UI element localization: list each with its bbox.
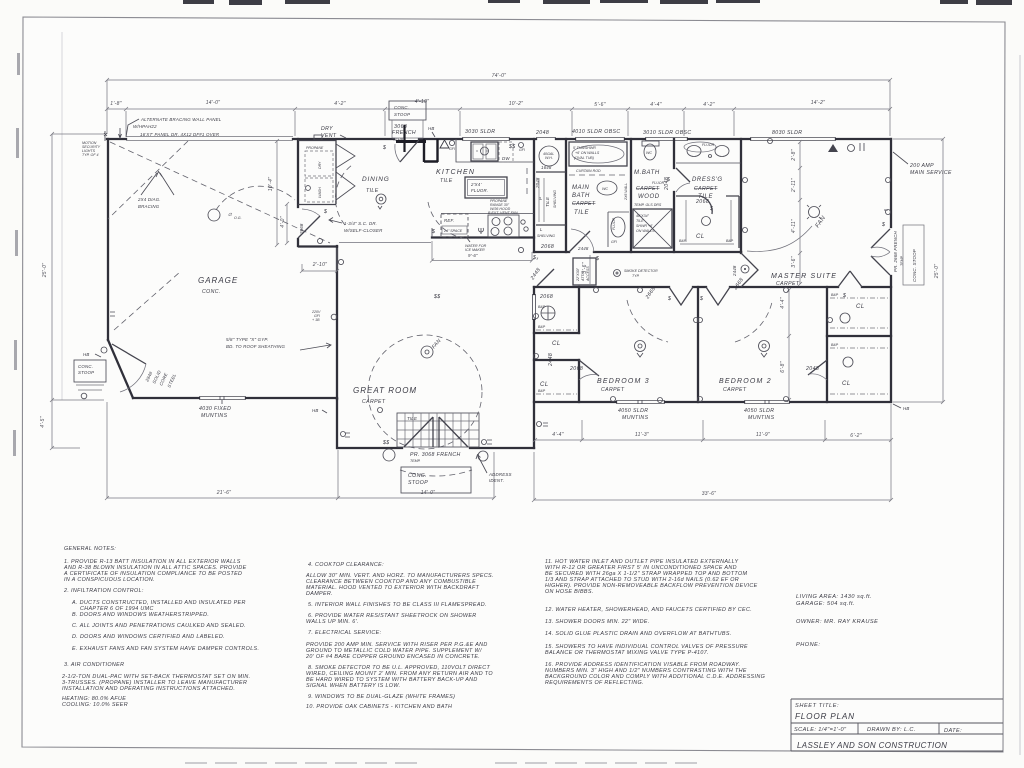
svg-text:GARAGE: GARAGE (198, 276, 238, 285)
svg-text:DRAWN BY: L.C.: DRAWN BY: L.C. (867, 727, 916, 733)
svg-text:VENT: VENT (321, 133, 337, 139)
svg-text:DATE:: DATE: (944, 728, 962, 734)
svg-text:2048: 2048 (535, 130, 549, 136)
svg-text:CARPET: CARPET (362, 399, 386, 405)
svg-text:$: $ (431, 229, 435, 235)
svg-text:5'-6": 5'-6" (594, 102, 605, 108)
svg-text:FLOOR PLAN: FLOOR PLAN (795, 712, 855, 721)
svg-text:TILE: TILE (574, 210, 589, 216)
svg-text:14'-2": 14'-2" (811, 100, 826, 106)
svg-text:DAMPER.: DAMPER. (306, 591, 333, 597)
svg-text:3'-6": 3'-6" (791, 256, 797, 267)
svg-text:13. SHOWER DOORS MIN. 22" WID: 13. SHOWER DOORS MIN. 22" WIDE. (545, 619, 650, 625)
svg-text:STOOP: STOOP (408, 480, 428, 486)
svg-text:∅: ∅ (228, 212, 232, 217)
svg-text:CONC.: CONC. (394, 105, 409, 110)
svg-text:REF.: REF. (444, 218, 454, 223)
svg-text:ADDRESS: ADDRESS (488, 472, 512, 477)
svg-text:HB: HB (312, 408, 319, 413)
svg-text:BEDROOM 3: BEDROOM 3 (597, 378, 650, 385)
svg-text:WASH: WASH (318, 187, 322, 198)
svg-text:COOLING: 10.0% SEER: COOLING: 10.0% SEER (62, 702, 128, 708)
svg-text:1648: 1648 (541, 165, 552, 170)
svg-text:D. DOORS AND WINDOWS CERTIFIED: D. DOORS AND WINDOWS CERTIFIED AND LABEL… (72, 634, 225, 640)
svg-text:B EXT. VENT FAN: B EXT. VENT FAN (488, 211, 518, 215)
svg-text:CL: CL (540, 382, 549, 388)
svg-text:5/8" TYPE "X" GYP.: 5/8" TYPE "X" GYP. (226, 337, 268, 342)
svg-text:9. WINDOWS TO BE DUAL-GLAZE (: 9. WINDOWS TO BE DUAL-GLAZE (WHITE FRAME… (308, 694, 455, 700)
svg-text:B&P: B&P (538, 389, 546, 393)
svg-text:GFI: GFI (519, 148, 525, 152)
svg-text:10'-4": 10'-4" (268, 177, 274, 192)
svg-text:2'X4': 2'X4' (470, 182, 482, 187)
svg-text:B. DOORS AND WINDOWS WEATHERST: B. DOORS AND WINDOWS WEATHERSTRIPPED. (72, 612, 209, 618)
svg-text:SCALE: 1/4"=1'-0": SCALE: 1/4"=1'-0" (794, 727, 847, 733)
svg-text:B&P: B&P (538, 325, 546, 329)
svg-text:4'-10": 4'-10" (415, 99, 430, 105)
svg-text:11'-3": 11'-3" (635, 432, 649, 438)
svg-text:SHWR +6': SHWR +6' (636, 224, 653, 228)
svg-text:B&P: B&P (831, 343, 839, 347)
svg-text:BALANCE OR THERMOSTAT MIXING V: BALANCE OR THERMOSTAT MIXING VALVE TYPE … (545, 650, 709, 656)
svg-text:(OVAL TUB): (OVAL TUB) (574, 156, 594, 160)
svg-text:2'-8": 2'-8" (791, 149, 797, 161)
svg-text:WALLS UP MIN. 6'.: WALLS UP MIN. 6'. (306, 619, 359, 625)
svg-text:21'-6": 21'-6" (216, 490, 232, 496)
svg-text:PROPANE: PROPANE (306, 146, 324, 150)
svg-text:CL: CL (856, 304, 865, 310)
svg-text:$: $ (382, 145, 386, 151)
svg-text:TILE: TILE (440, 178, 453, 184)
svg-text:48"X34": 48"X34" (636, 214, 650, 218)
svg-text:B&P: B&P (726, 239, 734, 243)
svg-text:4'-4": 4'-4" (552, 432, 563, 438)
svg-text:ACCESS: ACCESS (586, 266, 590, 282)
svg-text:2448: 2448 (548, 353, 554, 367)
svg-text:DINING: DINING (362, 176, 390, 183)
svg-text:$₃: $₃ (532, 255, 539, 261)
svg-text:4'-2": 4'-2" (703, 102, 714, 108)
svg-text:MUNTINS: MUNTINS (201, 413, 228, 419)
svg-text:4'-4": 4'-4" (650, 102, 661, 108)
svg-text:4'-2": 4'-2" (334, 101, 345, 107)
svg-text:ATTIC: ATTIC (581, 270, 585, 282)
svg-text:PR. 2668 FRENCH: PR. 2668 FRENCH (893, 231, 898, 272)
svg-text:16'X7' PANEL DR. 4X12 DF#1 OVE: 16'X7' PANEL DR. 4X12 DF#1 OVER (140, 132, 220, 137)
svg-text:14'-0": 14'-0" (206, 100, 221, 106)
svg-text:CURTAIN ROD: CURTAIN ROD (576, 169, 601, 173)
svg-text:SHELVING: SHELVING (537, 234, 555, 238)
svg-text:2. INFILTRATION CONTROL:: 2. INFILTRATION CONTROL: (63, 588, 144, 594)
svg-text:C. ALL JOINTS AND PENETRATIONS: C. ALL JOINTS AND PENETRATIONS CAULKED A… (72, 623, 246, 629)
svg-text:HB: HB (83, 352, 90, 357)
svg-text:TILE: TILE (407, 416, 417, 421)
svg-text:CONC. STOOP: CONC. STOOP (912, 249, 917, 282)
svg-text:TILE: TILE (366, 188, 379, 194)
svg-text:ALTERNATE BRACING WALL PANEL: ALTERNATE BRACING WALL PANEL (140, 117, 222, 122)
svg-text:INSTALLATION AND OPERATING INS: INSTALLATION AND OPERATING INSTRUCTIONS … (62, 686, 235, 692)
svg-text:2068: 2068 (539, 294, 553, 300)
svg-text:DRESS'G: DRESS'G (692, 177, 723, 183)
svg-text:PHONE:: PHONE: (796, 642, 820, 648)
svg-text:OWNER: MR. RAY KRAUSE: OWNER: MR. RAY KRAUSE (796, 619, 878, 625)
svg-text:1'-8": 1'-8" (110, 101, 121, 107)
svg-text:FLUOR: FLUOR (702, 143, 715, 147)
svg-text:CARPET: CARPET (723, 387, 747, 393)
svg-text:FLUOR: FLUOR (612, 217, 616, 230)
svg-text:74'-0": 74'-0" (492, 73, 507, 79)
svg-text:33'-6": 33'-6" (702, 491, 717, 497)
svg-text:CL: CL (842, 381, 851, 387)
svg-text:2'-10": 2'-10" (312, 262, 328, 268)
svg-text:20' OF #4 BARE COPPER GROUND E: 20' OF #4 BARE COPPER GROUND ENCASED IN … (305, 654, 480, 660)
svg-text:2448: 2448 (577, 246, 589, 251)
svg-text:2448: 2448 (732, 265, 737, 277)
svg-text:3. AIR CONDITIONER: 3. AIR CONDITIONER (64, 662, 124, 668)
svg-text:STOOP: STOOP (78, 370, 94, 375)
svg-text:W/HPAH22: W/HPAH22 (133, 124, 157, 129)
svg-text:2068: 2068 (540, 244, 554, 250)
svg-text:DRY: DRY (321, 126, 333, 132)
svg-text:200 AMP: 200 AMP (909, 163, 934, 169)
svg-text:GENERAL NOTES:: GENERAL NOTES: (64, 546, 116, 552)
svg-text:LASSLEY AND SON CONSTRUCTION: LASSLEY AND SON CONSTRUCTION (797, 741, 947, 750)
svg-text:ICE MAKER: ICE MAKER (465, 248, 485, 252)
svg-text:BRACING: BRACING (138, 204, 160, 209)
svg-text:CONC.: CONC. (408, 473, 427, 479)
svg-text:TILE: TILE (545, 197, 550, 207)
svg-text:4. COOKTOP CLEARANCE:: 4. COOKTOP CLEARANCE: (308, 562, 384, 568)
svg-text:6'-8": 6'-8" (780, 361, 786, 372)
svg-text:BATH: BATH (572, 193, 590, 199)
svg-text:LIVING AREA: 1430 sq.ft.: LIVING AREA: 1430 sq.ft. (796, 594, 872, 600)
svg-text:STOOP: STOOP (394, 112, 410, 117)
svg-text:CARPET: CARPET (694, 186, 718, 192)
svg-text:CL: CL (552, 341, 561, 347)
svg-text:O.G.: O.G. (234, 216, 242, 220)
svg-text:HB: HB (428, 126, 435, 131)
svg-text:SHELVING: SHELVING (553, 190, 557, 208)
svg-text:WC: WC (646, 151, 652, 155)
svg-text:$$: $$ (508, 144, 516, 150)
svg-text:3030 SLDR: 3030 SLDR (465, 129, 495, 135)
svg-text:25'-0": 25'-0" (42, 263, 48, 279)
svg-text:DRY: DRY (318, 161, 322, 169)
svg-text:10. PROVIDE OAK CABINETS - KIT: 10. PROVIDE OAK CABINETS - KITCHEN AND B… (306, 704, 452, 710)
svg-text:IN A CONSPICUOUS LOCATION.: IN A CONSPICUOUS LOCATION. (64, 577, 155, 583)
svg-text:B&P: B&P (831, 293, 839, 297)
svg-text:TEMP.: TEMP. (410, 459, 421, 463)
svg-text:TEMP.: TEMP. (900, 255, 904, 266)
svg-text:5' TUB/SHWR: 5' TUB/SHWR (573, 146, 596, 150)
svg-text:SMOKE DETECTOR: SMOKE DETECTOR (624, 269, 658, 273)
svg-text:4'-5": 4'-5" (40, 416, 46, 427)
svg-text:4010 SLDR OBSC: 4010 SLDR OBSC (572, 129, 621, 135)
svg-text:MASTER SUITE: MASTER SUITE (771, 273, 837, 280)
svg-text:$: $ (881, 222, 885, 228)
svg-text:MUNTINS: MUNTINS (748, 415, 775, 421)
svg-text:CARPET: CARPET (601, 387, 625, 393)
svg-text:2'-11": 2'-11" (791, 178, 797, 193)
svg-text:BEDROOM 2: BEDROOM 2 (719, 378, 772, 385)
svg-text:2X4 DIAG.: 2X4 DIAG. (137, 197, 161, 202)
svg-text:2868: 2868 (299, 223, 304, 235)
svg-text:CARPET: CARPET (636, 186, 660, 192)
svg-text:E. EXHAUST FANS AND FAN SYSTEM: E. EXHAUST FANS AND FAN SYSTEM HAVE DAMP… (72, 646, 259, 652)
svg-text:DW: DW (502, 156, 510, 161)
svg-text:1-3/4" S.C. DR.: 1-3/4" S.C. DR. (344, 221, 377, 226)
svg-text:ON HOSE BIBBS.: ON HOSE BIBBS. (545, 589, 594, 595)
svg-text:IDENT.: IDENT. (489, 478, 504, 483)
svg-text:2048: 2048 (664, 177, 670, 191)
svg-text:BD. TO ROOF SHEATHING: BD. TO ROOF SHEATHING (226, 344, 285, 349)
svg-text:TYP.: TYP. (632, 274, 640, 278)
svg-text:TEMP. GLS DRS: TEMP. GLS DRS (634, 203, 662, 207)
svg-text:CARPET: CARPET (776, 281, 800, 287)
svg-text:B&P: B&P (538, 305, 546, 309)
svg-text:HB: HB (903, 406, 910, 411)
svg-text:4'-4": 4'-4" (780, 297, 786, 308)
svg-text:M.BATH: M.BATH (634, 170, 660, 176)
svg-text:SIGNAL WHEN BATTERY IS LOW.: SIGNAL WHEN BATTERY IS LOW. (306, 683, 400, 689)
svg-text:4050 SLDR: 4050 SLDR (618, 408, 648, 414)
svg-text:CONC.: CONC. (78, 364, 93, 369)
svg-text:$: $ (699, 296, 703, 302)
svg-text:CL: CL (696, 234, 705, 240)
svg-text:WC: WC (602, 187, 608, 191)
svg-text:MAIN SERVICE: MAIN SERVICE (910, 170, 952, 176)
svg-text:SHEET TITLE:: SHEET TITLE: (795, 703, 839, 709)
svg-text:L: L (540, 227, 543, 232)
svg-text:6'-2": 6'-2" (850, 433, 861, 439)
svg-text:REQUIREMENTS OF REFLECTING.: REQUIREMENTS OF REFLECTING. (545, 680, 644, 686)
svg-text:5. INTERIOR WALL FINISHES TO: 5. INTERIOR WALL FINISHES TO BE CLASS II… (308, 602, 487, 608)
svg-text:WOOD: WOOD (638, 194, 660, 200)
svg-text:25'-0": 25'-0" (934, 264, 940, 280)
svg-text:4030 FIXED: 4030 FIXED (199, 406, 231, 412)
svg-text:2048: 2048 (805, 366, 819, 372)
svg-text:12. WATER HEATER, SHOWERHEAD,: 12. WATER HEATER, SHOWERHEAD, AND FAUCET… (545, 607, 752, 613)
svg-text:2X6 WALL: 2X6 WALL (624, 183, 628, 201)
svg-text:7. ELECTRICAL SERVICE:: 7. ELECTRICAL SERVICE: (308, 630, 382, 636)
svg-text:MUNTINS: MUNTINS (622, 415, 649, 421)
svg-text:8030 SLDR: 8030 SLDR (772, 130, 802, 136)
svg-text:$: $ (667, 296, 671, 302)
svg-text:2068: 2068 (569, 366, 583, 372)
svg-text:$: $ (709, 206, 713, 212)
svg-text:FLUOR: FLUOR (652, 181, 665, 185)
svg-text:24" SPACE: 24" SPACE (443, 229, 463, 233)
svg-text:TYP. OF 4: TYP. OF 4 (82, 153, 98, 157)
svg-text:+ 1B: + 1B (312, 318, 320, 322)
svg-text:TILE: TILE (636, 219, 644, 223)
svg-text:CARPET: CARPET (572, 201, 596, 207)
svg-text:$$: $$ (433, 294, 441, 300)
svg-text:11'-9": 11'-9" (756, 432, 770, 438)
svg-text:+6' ON WALLS: +6' ON WALLS (575, 151, 600, 155)
svg-text:GFI: GFI (449, 147, 455, 151)
svg-text:B&P: B&P (679, 239, 687, 243)
svg-text:ON WALLS: ON WALLS (636, 229, 655, 233)
svg-text:CONC.: CONC. (202, 289, 221, 295)
svg-text:GFI: GFI (611, 240, 617, 244)
svg-text:$$: $$ (382, 440, 390, 446)
svg-text:4'-11": 4'-11" (791, 219, 797, 233)
svg-text:22"X30": 22"X30" (576, 267, 580, 282)
svg-text:MAIN: MAIN (572, 185, 589, 191)
svg-text:GREAT ROOM: GREAT ROOM (353, 386, 417, 395)
svg-text:W/SELF-CLOSER: W/SELF-CLOSER (344, 228, 383, 233)
svg-text:4050 SLDR: 4050 SLDR (744, 408, 774, 414)
svg-text:PR. 3068 FRENCH: PR. 3068 FRENCH (410, 452, 461, 458)
svg-text:KITCHEN: KITCHEN (436, 169, 475, 176)
svg-text:9'-6": 9'-6" (468, 253, 478, 258)
svg-text:W.H.: W.H. (545, 156, 553, 160)
svg-text:FLUOR.: FLUOR. (471, 188, 488, 193)
svg-text:14. SOLID GLUE PLASTIC DRAIN: 14. SOLID GLUE PLASTIC DRAIN AND OVERFLO… (545, 631, 732, 637)
svg-text:GARAGE: 504 sq.ft.: GARAGE: 504 sq.ft. (796, 601, 855, 607)
svg-text:$: $ (323, 209, 327, 215)
svg-text:3010 SLDR OBSC: 3010 SLDR OBSC (643, 130, 692, 136)
svg-text:10'-2": 10'-2" (509, 101, 524, 107)
